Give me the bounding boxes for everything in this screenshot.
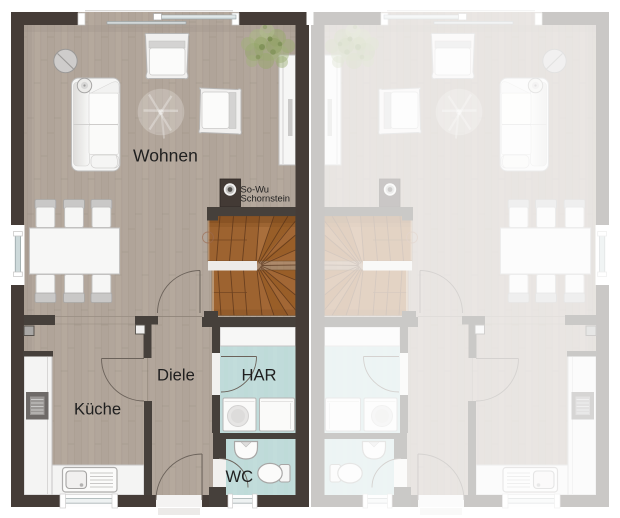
- svg-text:HAR: HAR: [242, 366, 277, 385]
- svg-text:WC: WC: [226, 467, 254, 486]
- svg-text:Wohnen: Wohnen: [133, 146, 198, 166]
- svg-text:Diele: Diele: [157, 366, 195, 385]
- svg-text:Küche: Küche: [74, 400, 121, 419]
- svg-text:Schornstein: Schornstein: [241, 193, 291, 204]
